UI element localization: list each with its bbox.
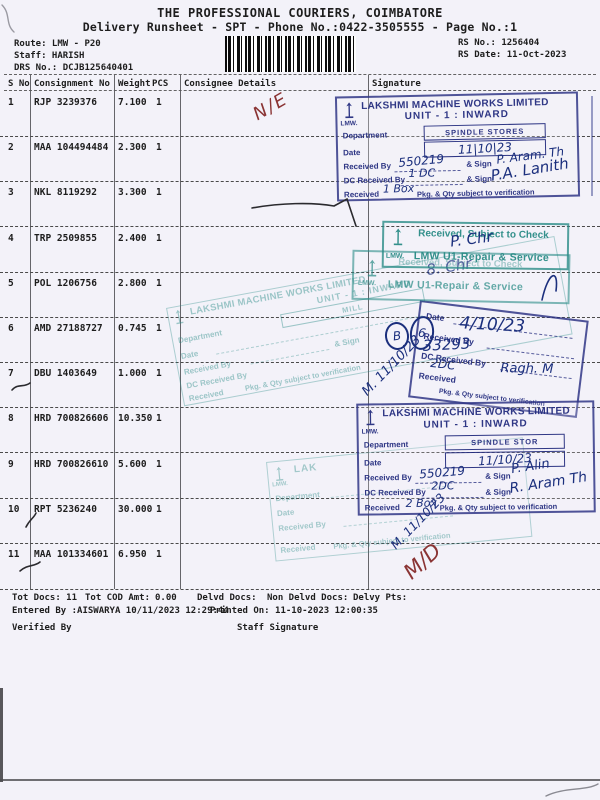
pen-strokes-overlay — [0, 0, 600, 800]
delivery-runsheet-scan: THE PROFESSIONAL COURIERS, COIMBATORE De… — [0, 0, 600, 800]
